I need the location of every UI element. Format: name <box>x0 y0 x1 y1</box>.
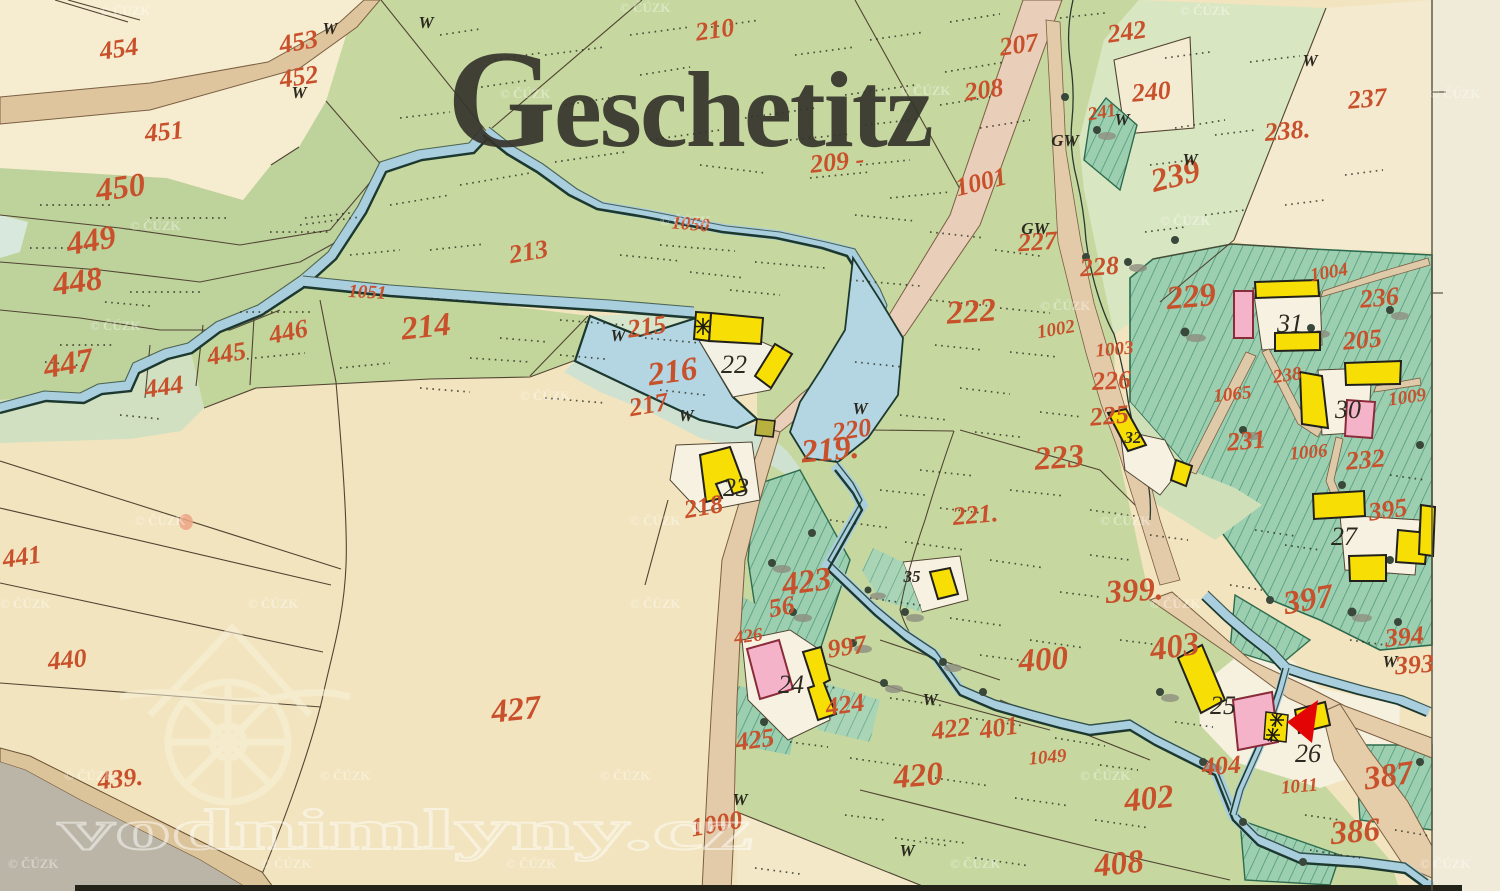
svg-text:© ČÚZK: © ČÚZK <box>1040 298 1091 313</box>
svg-text:225: 225 <box>1088 399 1130 431</box>
svg-text:© ČÚZK: © ČÚZK <box>630 513 681 528</box>
svg-text:214: 214 <box>398 307 452 348</box>
svg-text:30: 30 <box>1334 395 1361 424</box>
svg-text:27: 27 <box>1331 522 1358 551</box>
svg-text:© ČÚZK: © ČÚZK <box>135 513 186 528</box>
svg-text:997: 997 <box>825 629 869 663</box>
svg-text:© ČÚZK: © ČÚZK <box>248 596 299 611</box>
svg-text:© ČÚZK: © ČÚZK <box>660 213 711 228</box>
svg-text:W: W <box>1302 51 1319 70</box>
svg-text:222: 222 <box>944 292 997 331</box>
svg-text:238.: 238. <box>1262 114 1311 147</box>
svg-text:© ČÚZK: © ČÚZK <box>8 856 59 871</box>
svg-text:426: 426 <box>732 624 765 649</box>
svg-text:454: 454 <box>96 32 140 66</box>
svg-text:GW: GW <box>1021 219 1050 238</box>
svg-text:425: 425 <box>732 723 776 757</box>
svg-text:GW: GW <box>1051 131 1080 150</box>
svg-text:386: 386 <box>1328 812 1382 852</box>
svg-text:© ČÚZK: © ČÚZK <box>630 596 681 611</box>
svg-text:209 -: 209 - <box>808 144 866 179</box>
svg-text:© ČÚZK: © ČÚZK <box>90 318 141 333</box>
svg-text:© ČÚZK: © ČÚZK <box>1150 596 1201 611</box>
svg-text:408: 408 <box>1091 844 1145 885</box>
svg-text:242: 242 <box>1104 15 1148 49</box>
svg-text:422: 422 <box>928 712 972 746</box>
svg-text:394: 394 <box>1383 620 1425 652</box>
svg-text:© ČÚZK: © ČÚZK <box>64 768 115 783</box>
svg-text:© ČÚZK: © ČÚZK <box>1420 856 1471 871</box>
svg-text:© ČÚZK: © ČÚZK <box>1160 213 1211 228</box>
svg-text:26: 26 <box>1295 739 1321 768</box>
svg-text:© ČÚZK: © ČÚZK <box>500 86 551 101</box>
svg-text:W: W <box>322 19 339 38</box>
svg-text:236: 236 <box>1358 281 1400 313</box>
svg-text:228: 228 <box>1078 251 1120 283</box>
svg-text:403: 403 <box>1147 626 1202 669</box>
svg-text:22: 22 <box>721 350 747 379</box>
svg-text:451: 451 <box>142 115 185 148</box>
svg-text:440: 440 <box>45 643 88 676</box>
svg-text:W: W <box>610 326 627 345</box>
svg-text:W: W <box>291 83 308 102</box>
svg-text:387: 387 <box>1361 755 1418 798</box>
svg-text:© ČÚZK: © ČÚZK <box>1100 513 1151 528</box>
svg-text:W: W <box>899 841 916 860</box>
svg-text:31: 31 <box>1276 309 1303 338</box>
svg-text:vodnimlyny.cz: vodnimlyny.cz <box>58 799 753 862</box>
svg-text:210: 210 <box>692 13 736 47</box>
svg-text:393: 393 <box>1393 649 1435 681</box>
svg-text:© ČÚZK: © ČÚZK <box>520 388 571 403</box>
svg-text:23: 23 <box>723 473 749 502</box>
svg-text:427: 427 <box>488 689 543 730</box>
svg-text:424: 424 <box>822 688 866 722</box>
svg-text:402: 402 <box>1121 779 1175 820</box>
svg-text:W: W <box>418 13 435 32</box>
svg-text:237: 237 <box>1346 82 1389 114</box>
svg-text:W: W <box>678 406 695 425</box>
svg-text:© ČÚZK: © ČÚZK <box>0 596 51 611</box>
svg-text:© ČÚZK: © ČÚZK <box>130 218 181 233</box>
svg-text:© ČÚZK: © ČÚZK <box>320 768 371 783</box>
svg-text:240: 240 <box>1130 75 1172 107</box>
svg-text:© ČÚZK: © ČÚZK <box>1180 3 1231 18</box>
svg-text:216: 216 <box>645 351 701 394</box>
svg-text:W: W <box>1114 110 1131 129</box>
svg-text:1003: 1003 <box>1095 337 1135 361</box>
svg-text:207: 207 <box>996 27 1041 61</box>
svg-text:56: 56 <box>766 590 797 623</box>
svg-text:420: 420 <box>891 756 944 796</box>
svg-text:1006: 1006 <box>1289 440 1329 464</box>
svg-text:205: 205 <box>1341 323 1383 355</box>
svg-text:226: 226 <box>1090 365 1131 396</box>
svg-text:© ČÚZK: © ČÚZK <box>620 0 671 15</box>
svg-text:223: 223 <box>1032 438 1085 477</box>
svg-text:448: 448 <box>50 261 105 304</box>
svg-text:25: 25 <box>1210 691 1236 720</box>
svg-text:W: W <box>852 399 869 418</box>
svg-text:32: 32 <box>1124 428 1143 447</box>
svg-text:404: 404 <box>1200 750 1242 782</box>
svg-text:© ČÚZK: © ČÚZK <box>950 856 1001 871</box>
svg-text:208: 208 <box>961 73 1005 107</box>
svg-text:© ČÚZK: © ČÚZK <box>1430 86 1481 101</box>
svg-text:450: 450 <box>93 167 148 210</box>
svg-text:© ČÚZK: © ČÚZK <box>1080 768 1131 783</box>
svg-text:© ČÚZK: © ČÚZK <box>506 856 557 871</box>
svg-text:229: 229 <box>1164 277 1217 317</box>
svg-text:© ČÚZK: © ČÚZK <box>100 3 151 18</box>
svg-text:1051: 1051 <box>348 281 387 304</box>
svg-text:© ČÚZK: © ČÚZK <box>900 83 951 98</box>
svg-text:395: 395 <box>1365 493 1409 527</box>
svg-text:24: 24 <box>778 670 804 699</box>
svg-text:© ČÚZK: © ČÚZK <box>600 768 651 783</box>
svg-text:215: 215 <box>624 310 668 344</box>
svg-text:© ČÚZK: © ČÚZK <box>261 856 312 871</box>
svg-text:1049: 1049 <box>1028 745 1068 769</box>
svg-text:1011: 1011 <box>1280 774 1319 798</box>
svg-text:W: W <box>1382 652 1399 671</box>
svg-text:221.: 221. <box>950 498 999 531</box>
svg-text:238: 238 <box>1271 363 1304 388</box>
svg-text:35: 35 <box>903 567 922 586</box>
svg-text:401: 401 <box>976 711 1020 745</box>
svg-text:400: 400 <box>1016 640 1069 679</box>
svg-text:231: 231 <box>1225 424 1267 456</box>
svg-text:441: 441 <box>0 540 43 574</box>
svg-text:W: W <box>922 690 939 709</box>
svg-text:1065: 1065 <box>1212 382 1252 407</box>
svg-text:444: 444 <box>141 370 185 404</box>
svg-text:W: W <box>1182 150 1199 169</box>
svg-text:232: 232 <box>1344 443 1386 475</box>
